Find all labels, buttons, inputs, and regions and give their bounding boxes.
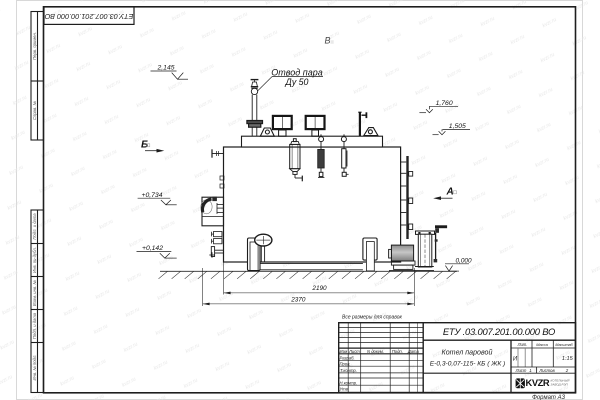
svg-text:Т.контр.: Т.контр. [340, 368, 357, 373]
svg-text:Лист: Лист [348, 349, 360, 354]
svg-text:2,145: 2,145 [157, 65, 175, 72]
svg-text:1:15: 1:15 [562, 356, 574, 362]
svg-text:+0,734: +0,734 [142, 192, 163, 199]
svg-text:Е-0,3-0,07-115- КБ ( ЖК ): Е-0,3-0,07-115- КБ ( ЖК ) [430, 361, 506, 368]
svg-text:+0,142: +0,142 [142, 245, 163, 252]
svg-text:2190: 2190 [311, 285, 327, 292]
svg-text:И: И [513, 357, 518, 363]
svg-text:Инв. № подл.: Инв. № подл. [32, 355, 37, 381]
svg-text:Подп.: Подп. [392, 349, 403, 354]
svg-text:В: В [325, 36, 331, 46]
svg-text:А: А [446, 187, 454, 198]
svg-text:Все размеры для справок: Все размеры для справок [342, 314, 403, 320]
svg-text:N докум.: N докум. [367, 349, 384, 354]
svg-text:Изм: Изм [340, 349, 348, 354]
svg-text:Масштаб: Масштаб [555, 343, 573, 347]
svg-text:Перв. примен.: Перв. примен. [32, 32, 37, 60]
svg-text:Лист: Лист [515, 368, 527, 373]
svg-text:Формат А3: Формат А3 [532, 395, 565, 400]
svg-text:Масса: Масса [536, 342, 548, 347]
svg-text:1,505: 1,505 [449, 123, 466, 130]
svg-text:KVZR: KVZR [526, 378, 550, 388]
svg-text:Пров.: Пров. [340, 361, 351, 366]
svg-text:2370: 2370 [290, 296, 306, 303]
svg-text:Справ. №: Справ. № [32, 101, 37, 120]
svg-text:Утв.: Утв. [340, 387, 350, 392]
svg-text:Лит.: Лит. [517, 342, 528, 347]
svg-text:Ду 50: Ду 50 [285, 77, 309, 87]
svg-text:Котел паровой: Котел паровой [442, 349, 493, 357]
svg-text:ЗАВОД РЭП: ЗАВОД РЭП [551, 383, 569, 387]
svg-text:Н.контр.: Н.контр. [340, 380, 358, 385]
svg-text:1,760: 1,760 [436, 100, 453, 107]
svg-text:2: 2 [565, 368, 569, 373]
svg-text:Инв. № дубл.: Инв. № дубл. [32, 247, 37, 273]
svg-text:Дата: Дата [407, 349, 420, 354]
svg-text:ЕТУ .03.007.201.00.000 ВО: ЕТУ .03.007.201.00.000 ВО [443, 326, 556, 337]
svg-text:Разраб.: Разраб. [340, 355, 355, 360]
svg-text:ЕТУ.03.007.201.00.000 ВО: ЕТУ.03.007.201.00.000 ВО [44, 12, 133, 21]
svg-text:Подп. и дата: Подп. и дата [32, 312, 37, 339]
svg-text:Взам. инв. №: Взам. инв. № [32, 280, 37, 306]
svg-text:0,000: 0,000 [456, 257, 472, 264]
svg-text:Подп. и дата: Подп. и дата [32, 213, 37, 240]
svg-text:Листов: Листов [538, 368, 555, 373]
